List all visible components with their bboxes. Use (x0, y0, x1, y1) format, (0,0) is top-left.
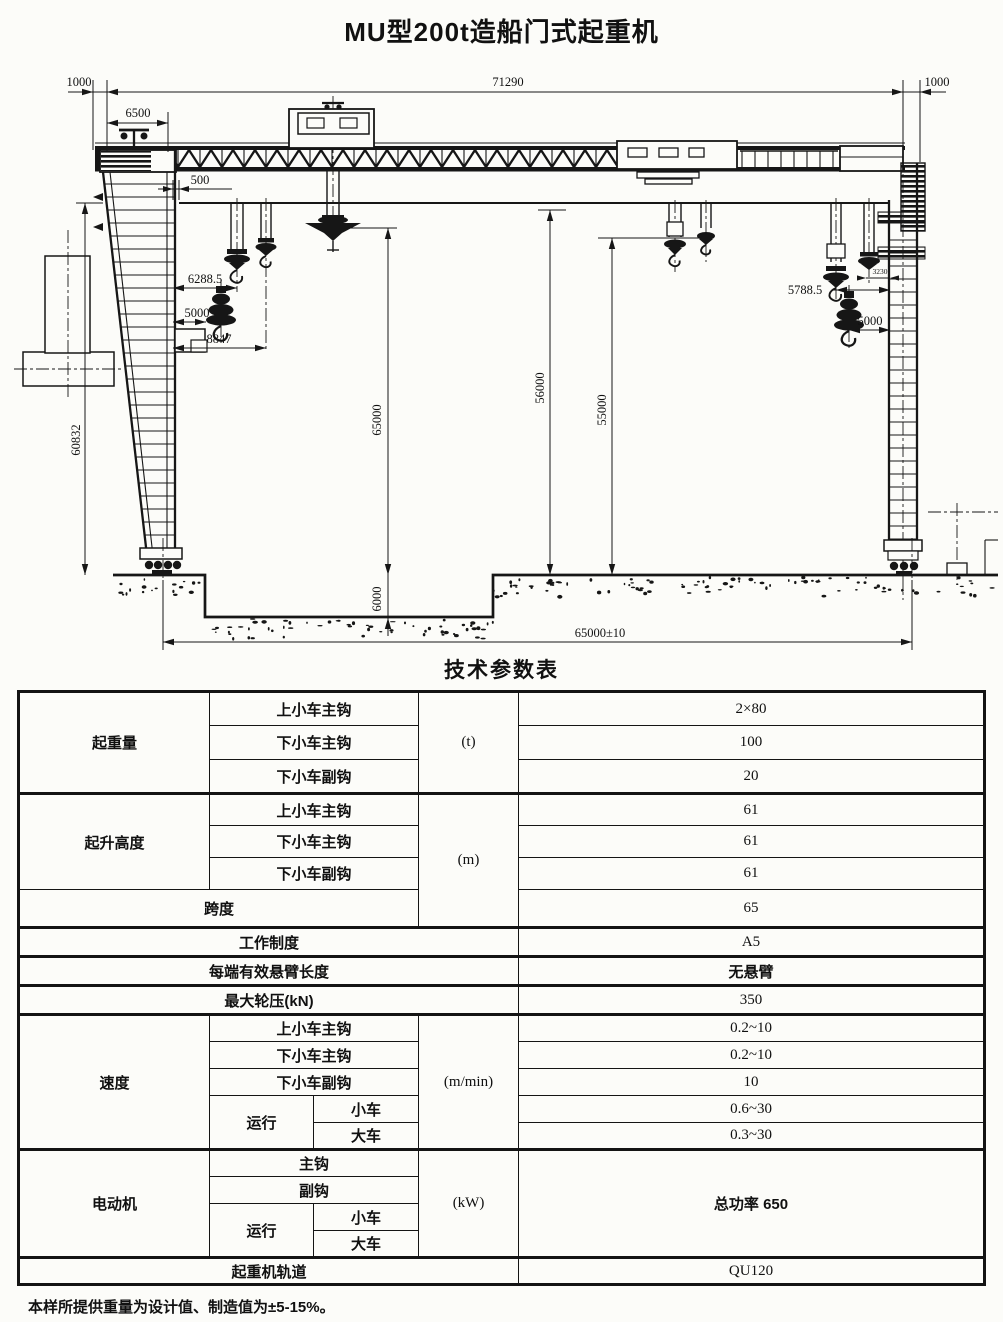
dim-clearance-under-girder: 56000 (533, 372, 547, 403)
row-label: 上小车主钩 (210, 1015, 419, 1042)
row-label: 小车 (314, 1096, 419, 1123)
catalog-page: MU型200t造船门式起重机 (0, 0, 1003, 1322)
dim-right-overhang: 1000 (925, 75, 950, 89)
row-label: 下小车主钩 (210, 826, 419, 858)
value-cell: A5 (519, 928, 985, 957)
value-cell: 0.2~10 (519, 1015, 985, 1042)
group-motor: 电动机 (19, 1150, 210, 1258)
row-label: 上小车主钩 (210, 794, 419, 826)
table-heading: 技术参数表 (0, 654, 1003, 684)
dim-rail-clearance: 500 (191, 173, 210, 187)
dim-hook-clearance: 55000 (595, 394, 609, 425)
dim-right-block: 5000 (858, 314, 883, 328)
value-cell: 0.3~30 (519, 1123, 985, 1150)
sub-group-travel: 运行 (210, 1096, 314, 1150)
dim-lower-main-hook: 6288.5 (188, 272, 222, 286)
row-cantilever-label: 每端有效悬臂长度 (19, 957, 519, 986)
row-label: 下小车主钩 (210, 1042, 419, 1069)
value-cell: 总功率 650 (519, 1150, 985, 1258)
row-label: 小车 (314, 1204, 419, 1231)
row-label: 下小车副钩 (210, 760, 419, 794)
value-cell: QU120 (519, 1258, 985, 1285)
right-leg (878, 158, 925, 600)
sub-group-travel: 运行 (210, 1204, 314, 1258)
row-label: 下小车副钩 (210, 858, 419, 890)
dim-total-length: 71290 (492, 75, 523, 89)
row-wheel-load-label: 最大轮压(kN) (19, 986, 519, 1015)
unit-cell: (m/min) (419, 1015, 519, 1150)
upper-trolley-hook (305, 215, 361, 252)
ground-line (113, 575, 998, 641)
value-cell: 0.6~30 (519, 1096, 985, 1123)
row-label: 主钩 (210, 1150, 419, 1177)
crane-drawing: 1000 71290 1000 6500 500 6288.5 5000 884… (0, 0, 1003, 655)
mid-lower-hooks (664, 200, 715, 272)
unit-cell: (t) (419, 692, 519, 794)
dim-pit-depth: 6000 (370, 587, 384, 612)
row-label: 大车 (314, 1123, 419, 1150)
dim-right-hook-offset: 3230 (873, 267, 888, 276)
unit-cell: (kW) (419, 1150, 519, 1258)
upper-trolley (289, 96, 374, 252)
row-label: 下小车主钩 (210, 726, 419, 760)
value-cell: 无悬臂 (519, 957, 985, 986)
quay-edge (928, 503, 998, 580)
right-bogie (884, 540, 922, 575)
row-duty-label: 工作制度 (19, 928, 519, 957)
value-cell: 20 (519, 760, 985, 794)
unit-cell: (m) (419, 794, 519, 928)
footnote: 本样所提供重量为设计值、制造值为±5-15%。 (28, 1296, 335, 1317)
value-cell: 65 (519, 890, 985, 928)
dim-lower-block: 5000 (185, 306, 210, 320)
row-label: 下小车副钩 (210, 1069, 419, 1096)
dim-leg-height: 60832 (69, 424, 83, 455)
dim-left-overhang: 1000 (67, 75, 92, 89)
value-cell: 61 (519, 794, 985, 826)
row-label: 大车 (314, 1231, 419, 1258)
value-cell: 2×80 (519, 692, 985, 726)
row-span-label: 跨度 (19, 890, 419, 928)
value-cell: 350 (519, 986, 985, 1015)
dim-right-main-hook: 5788.5 (788, 283, 822, 297)
group-capacity: 起重量 (19, 692, 210, 794)
row-label: 副钩 (210, 1177, 419, 1204)
value-cell: 100 (519, 726, 985, 760)
machinery-house (617, 141, 737, 184)
value-cell: 61 (519, 826, 985, 858)
parameters-table: 起重量 上小车主钩 (t) 2×80 下小车主钩 100 下小车副钩 20 起升… (17, 690, 986, 1286)
value-cell: 0.2~10 (519, 1042, 985, 1069)
left-bogie (140, 548, 182, 575)
dim-upper-trolley-offset: 6500 (126, 106, 151, 120)
value-cell: 61 (519, 858, 985, 890)
value-cell: 10 (519, 1069, 985, 1096)
dim-hook-lift-height: 65000 (370, 404, 384, 435)
dim-lower-aux-hook: 8847 (207, 332, 232, 346)
dim-track-gauge: 65000±10 (575, 626, 626, 640)
group-height: 起升高度 (19, 794, 210, 890)
group-speed: 速度 (19, 1015, 210, 1150)
side-building (14, 230, 122, 398)
row-label: 上小车主钩 (210, 692, 419, 726)
row-rail-label: 起重机轨道 (19, 1258, 519, 1285)
